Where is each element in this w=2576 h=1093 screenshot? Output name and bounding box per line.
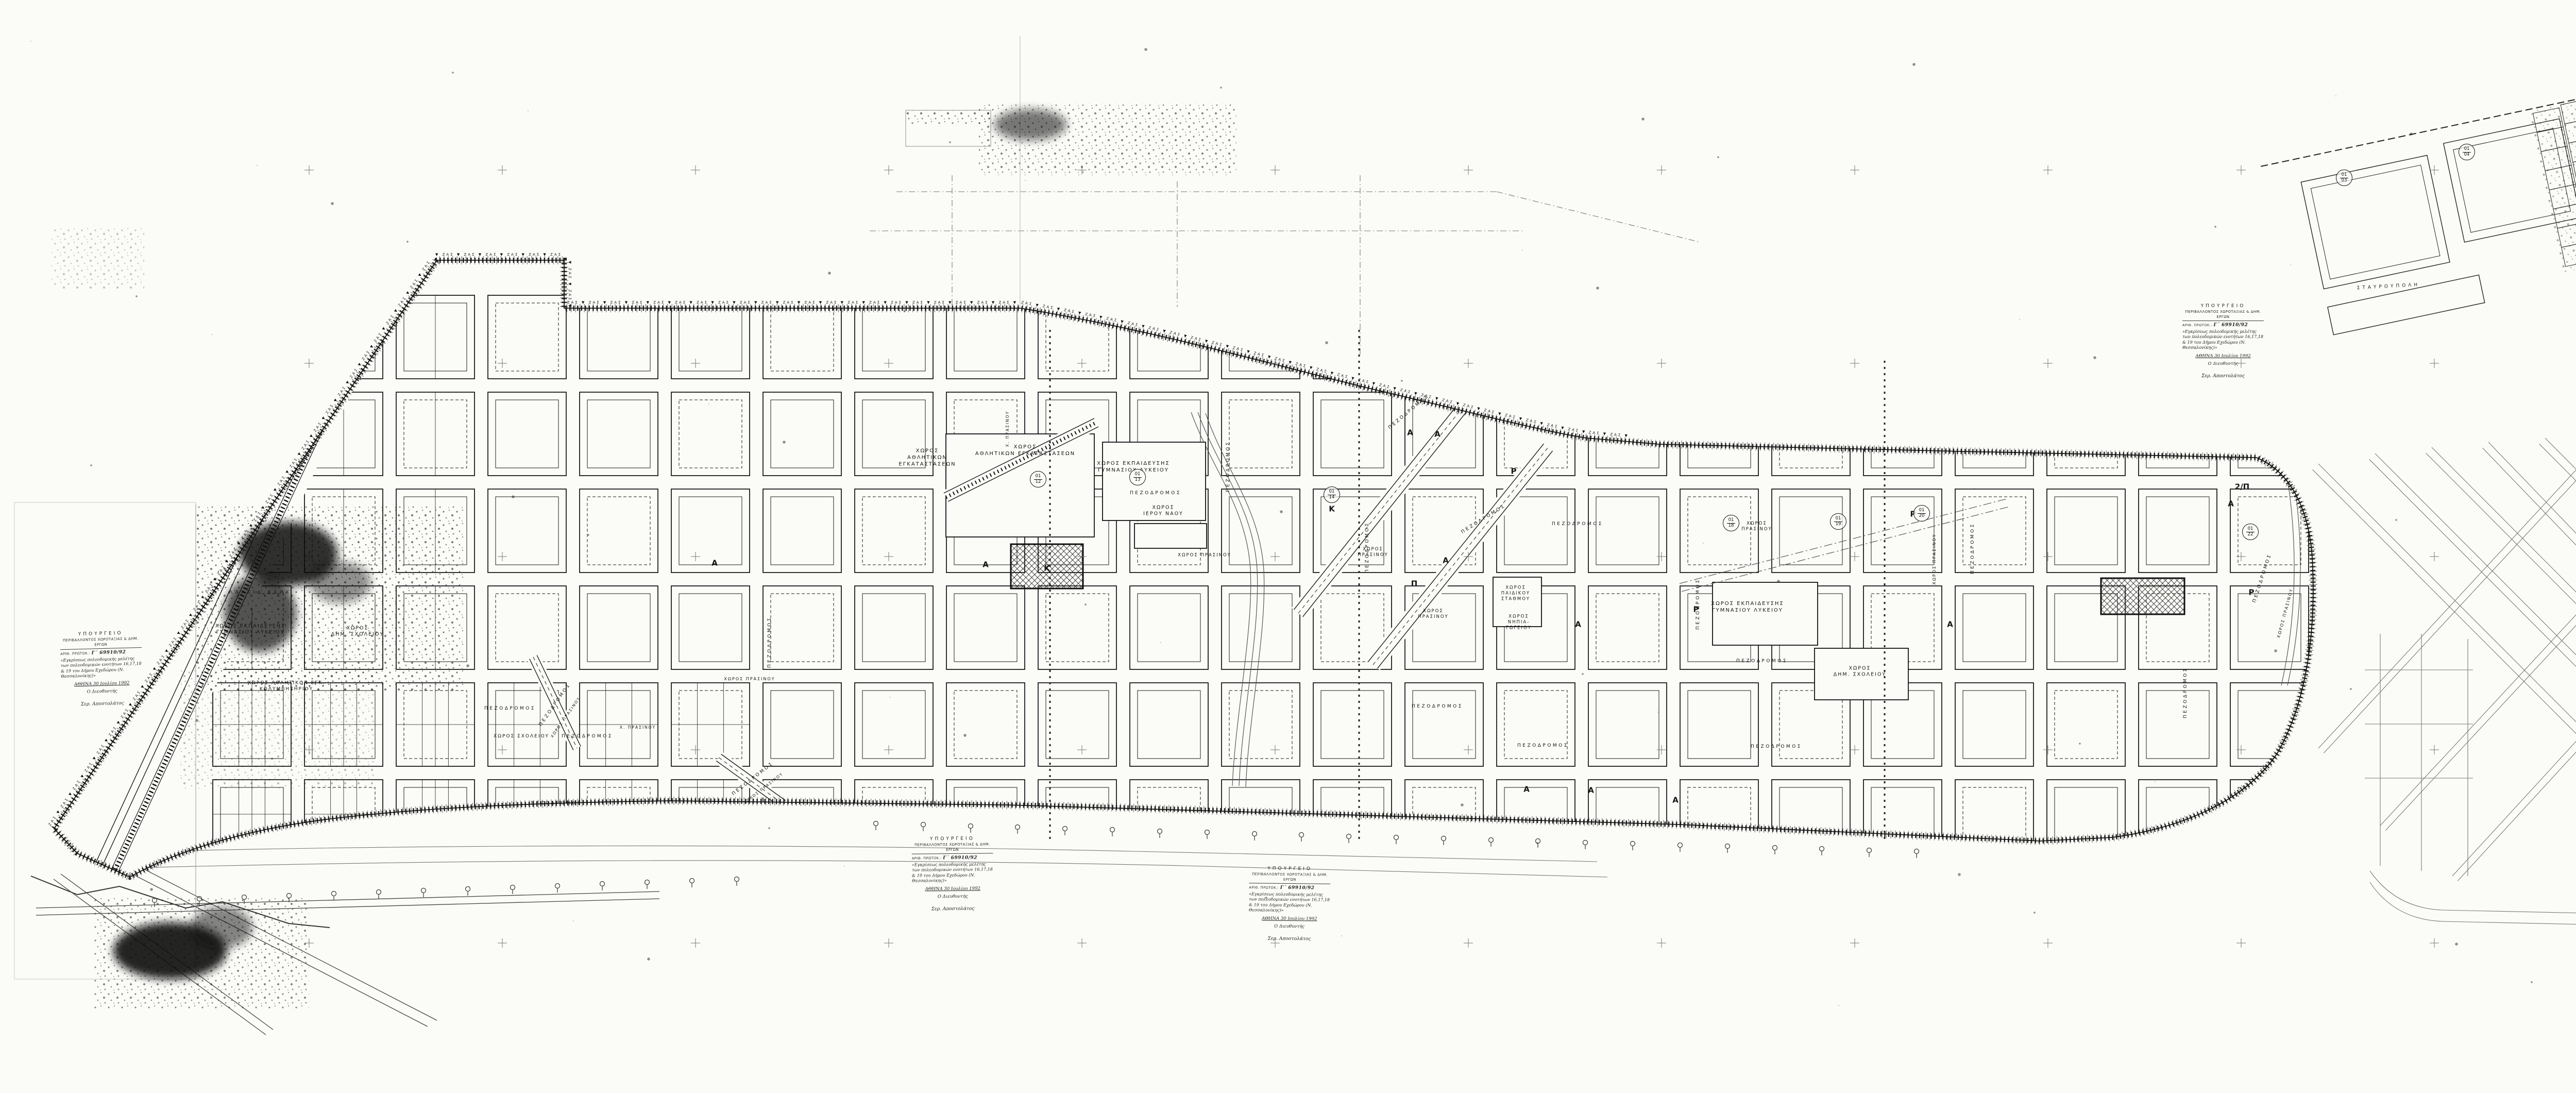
stamp-approval-text: «Εγκρίσεως πολεοδομικής μελέτης των πολε… bbox=[912, 862, 993, 884]
pedestrian-street-label: ΠΕΖΟΔΡΟΜΟΣ bbox=[767, 616, 773, 668]
pedestrian-street-label: ΠΕΖΟΔΡΟΜΟΣ bbox=[484, 706, 536, 712]
block-use-letter: Α bbox=[1434, 429, 1440, 440]
stamp-protocol-number: Γ΄ 69910/92 bbox=[943, 855, 977, 861]
stamp-ministry-dept: ΠΕΡΙΒΑΛΛΟΝΤΟΣ ΧΩΡΟΤΑΞΙΑΣ & ΔΗΜ. ΕΡΓΩΝ bbox=[2182, 310, 2264, 321]
block-number-badge: 0120 bbox=[1913, 505, 1930, 522]
stamp-protocol-number: Γ΄ 69910/92 bbox=[92, 649, 126, 655]
stamp-signature: Σερ. Αποστολάτος bbox=[62, 700, 143, 709]
land-use-label: ΧΩΡΟΣ ΕΚΠΑΙΔΕΥΣΗΣ ΓΥΜΝΑΣΙΟΥ ΛΥΚΕΙΟΥ bbox=[215, 624, 285, 636]
block-use-letter: Α bbox=[1588, 785, 1594, 796]
stamp-date: ΑΘΗΝΑ 30 Ιουλίου 1992 bbox=[1249, 916, 1330, 923]
block-number-badge: 0103 bbox=[2336, 170, 2352, 186]
block-use-letter: Α bbox=[711, 558, 718, 568]
stamp-date: ΑΘΗΝΑ 30 Ιουλίου 1992 bbox=[912, 886, 993, 893]
stamp-signature: Σερ. Αποστολάτος bbox=[912, 905, 994, 913]
stamp-signature: Σερ. Αποστολάτος bbox=[1248, 935, 1330, 943]
land-use-label: ΧΩΡΟΣ ΠΡΑΣΙΝΟΥ bbox=[1358, 547, 1388, 558]
land-use-label: ΧΩΡΟΣ ΠΡΑΣΙΝΟΥ bbox=[743, 771, 785, 805]
pedestrian-street-label: ΠΕΖΟΔΡΟΜΟΣ bbox=[1387, 393, 1431, 431]
land-use-label: Χ. ΠΡΑΣΙΝΟΥ bbox=[620, 725, 656, 730]
land-use-label: ΧΩΡΟΣ ΔΗΜ. ΣΧΟΛΕΙΟΥ bbox=[1834, 666, 1886, 679]
approval-stamp: ΥΠΟΥΡΓΕΙΟ ΠΕΡΙΒΑΛΛΟΝΤΟΣ ΧΩΡΟΤΑΞΙΑΣ & ΔΗΜ… bbox=[60, 630, 143, 709]
stamp-ministry: ΥΠΟΥΡΓΕΙΟ bbox=[2182, 303, 2264, 310]
stamp-approval-text: «Εγκρίσεως πολεοδομικής μελέτης των πολε… bbox=[60, 656, 142, 680]
block-use-letter: Α bbox=[1947, 619, 1953, 630]
pedestrian-street-label: ΠΕΖΟΔΡΟΜΟΣ bbox=[1365, 522, 1371, 573]
block-use-letter: Α bbox=[982, 560, 989, 570]
block-number-badge: 0114 bbox=[1324, 486, 1340, 503]
pedestrian-street-label: ΠΕΖΟΔΡΟΜΟΣ bbox=[1751, 744, 1802, 750]
block-use-letter: Α bbox=[1672, 795, 1679, 805]
land-use-label: ΧΩΡΟΣ ΠΡΑΣΙΝΟΥ bbox=[724, 677, 775, 682]
pedestrian-street-label: ΠΕΖΟΔΡΟΜΟΣ bbox=[2183, 667, 2189, 718]
stamp-date: ΑΘΗΝΑ 30 Ιουλίου 1992 bbox=[2182, 353, 2264, 359]
stamp-protocol-label: ΑΡΙΘ. ΠΡΩΤΟΚ.: bbox=[1249, 885, 1279, 890]
land-use-label: ΧΩΡΟΣ ΕΚΠΑΙΔΕΥΣΗΣ ΓΥΜΝΑΣΙΟΥ ΛΥΚΕΙΟΥ bbox=[1711, 600, 1784, 614]
block-use-letter: Κ bbox=[1329, 504, 1335, 514]
land-use-label: ΧΩΡΟΣ ΙΕΡΟΥ ΝΑΟΥ bbox=[1143, 505, 1183, 518]
pedestrian-street-label: ΠΕΖΟΔΡΟΜΟΣ bbox=[2252, 553, 2274, 604]
stamp-signer-title: Ο Διευθυντής bbox=[61, 687, 143, 696]
pedestrian-street-label: ΠΕΖΟΔΡΟΜΟΣ bbox=[1226, 441, 1232, 492]
pedestrian-street-label: ΠΕΖΟΔΡΟΜΟΣ bbox=[1970, 523, 1976, 574]
land-use-label: ΧΩΡΟΣ ΣΧΟΛΕΙΟΥ bbox=[494, 734, 549, 740]
toponym-label: ΣΤΑΥΡΟΥΠΟΛΗ bbox=[2357, 282, 2420, 292]
pedestrian-street-label: ΠΕΖΟΔΡΟΜΟΣ bbox=[538, 682, 573, 728]
approval-stamp: ΥΠΟΥΡΓΕΙΟ ΠΕΡΙΒΑΛΛΟΝΤΟΣ ΧΩΡΟΤΑΞΙΑΣ & ΔΗΜ… bbox=[1248, 865, 1330, 943]
block-number-badge: 0113 bbox=[1129, 469, 1146, 485]
pedestrian-street-label: ΠΕΖΟΔΡΟΜΟΣ bbox=[531, 801, 582, 807]
stamp-protocol-number: Γ΄ 69910/92 bbox=[1280, 885, 1315, 891]
stamp-protocol-number: Γ΄ 69910/92 bbox=[2214, 323, 2248, 328]
land-use-label: ΧΩΡΟΣ ΝΗΠΙΑ- ΓΩΓΕΙΟΥ bbox=[1506, 614, 1532, 631]
block-number-badge: 0122 bbox=[2242, 524, 2259, 540]
stamp-signer-title: Ο Διευθυντής bbox=[2182, 361, 2264, 367]
land-use-label: ΧΩΡΟΣ ΠΡΑΣΙΝΟΥ bbox=[1418, 609, 1448, 620]
stamp-approval-text: «Εγκρίσεως πολεοδομικής μελέτης των πολε… bbox=[2182, 329, 2264, 351]
block-use-letter: Π bbox=[1411, 579, 1418, 589]
land-use-label: ΧΩΡΟΣ ΠΡΑΣΙΝΟΥ bbox=[2276, 588, 2295, 639]
pedestrian-street-label: ΠΕΖΟΔΡΟΜΟΣ bbox=[1736, 659, 1788, 665]
block-use-letter: 2/Π bbox=[2235, 482, 2249, 492]
approval-stamp: ΥΠΟΥΡΓΕΙΟ ΠΕΡΙΒΑΛΛΟΝΤΟΣ ΧΩΡΟΤΑΞΙΑΣ & ΔΗΜ… bbox=[2182, 303, 2264, 380]
land-use-label: ΧΩΡΟΣ ΑΘΛΗΤΙΚΩΝ ΕΓΚΑΤΑΣΤΑΣΕΩΝ bbox=[899, 448, 956, 468]
toponym-label: ΛΑΚΚΙΑ ΚΑΡΑ bbox=[229, 590, 291, 596]
block-use-letter: Ρ bbox=[2249, 587, 2255, 598]
pedestrian-street-label: ΠΕΖΟΔΡΟΜΟΣ bbox=[1412, 704, 1463, 710]
block-number-badge: 0104 bbox=[2459, 144, 2475, 160]
land-use-label: ΧΩΡΟΣ ΑΘΛΗΤΙΚΩΝ ΕΓΚ. ΚΟΛΥΜΒΗΤΗΡΙΟΥ bbox=[248, 680, 325, 692]
scanned-town-plan-sheet: ΖΑΣ ▼ ΖΑΣ ▼ ΖΑΣ ▼ ΖΑΣ ▼ ΖΑΣ ▼ ΖΑΣ ▼ ΖΑΣ … bbox=[0, 0, 2576, 1093]
block-use-letter: Ρ bbox=[1511, 466, 1517, 477]
stamp-signer-title: Ο Διευθυντής bbox=[912, 893, 993, 900]
stamp-signature: Σερ. Αποστολάτος bbox=[2182, 373, 2264, 380]
stamp-signer-title: Ο Διευθυντής bbox=[1249, 923, 1330, 930]
land-use-label: ΧΩΡΟΣ ΠΡΑΣΙΝΟΥ bbox=[1178, 552, 1231, 558]
stamp-protocol: ΑΡΙΘ. ΠΡΩΤΟΚ.: Γ΄ 69910/92 bbox=[1249, 884, 1330, 892]
stamp-ministry-dept: ΠΕΡΙΒΑΛΛΟΝΤΟΣ ΧΩΡΟΤΑΞΙΑΣ & ΔΗΜ. ΕΡΓΩΝ bbox=[60, 636, 142, 650]
pedestrian-street-label: ΠΕΖΟΔΡΟΜΟΣ bbox=[1696, 578, 1702, 630]
block-use-letter: Α bbox=[1575, 619, 1581, 630]
stamp-ministry: ΥΠΟΥΡΓΕΙΟ bbox=[1249, 865, 1331, 872]
stamp-protocol-label: ΑΡΙΘ. ΠΡΩΤΟΚ.: bbox=[912, 856, 942, 861]
block-number-badge: 0112 bbox=[1030, 471, 1046, 487]
stamp-protocol: ΑΡΙΘ. ΠΡΩΤΟΚ.: Γ΄ 69910/92 bbox=[2182, 322, 2264, 329]
stamp-ministry-dept: ΠΕΡΙΒΑΛΛΟΝΤΟΣ ΧΩΡΟΤΑΞΙΑΣ & ΔΗΜ. ΕΡΓΩΝ bbox=[911, 842, 993, 854]
pedestrian-street-label: ΠΕΖΟΔΡΟΜΟΣ bbox=[1130, 491, 1181, 497]
pedestrian-street-label: ΠΕΖΟΔΡΟΜΟΣ bbox=[1517, 743, 1569, 749]
stamp-protocol-label: ΑΡΙΘ. ΠΡΩΤΟΚ.: bbox=[60, 651, 90, 656]
land-use-label: ΧΩΡΟΣ ΑΘΛΗΤΙΚΩΝ ΕΓΚΑΤΑΣΤΑΣΕΩΝ bbox=[975, 444, 1075, 457]
stamp-approval-text: «Εγκρίσεως πολεοδομικής μελέτης των πολε… bbox=[1249, 892, 1330, 914]
land-use-label: Χ. ΠΡΑΣΙΝΟΥ bbox=[1005, 411, 1010, 447]
stamp-protocol-label: ΑΡΙΘ. ΠΡΩΤΟΚ.: bbox=[2182, 323, 2212, 327]
block-use-letter: Α bbox=[1407, 428, 1413, 438]
block-use-letter: Α bbox=[2228, 499, 2234, 509]
land-use-label: ΧΩΡΟΣ ΠΡΑΣΙΝΟΥ bbox=[1932, 533, 1937, 584]
approval-stamp: ΥΠΟΥΡΓΕΙΟ ΠΕΡΙΒΑΛΛΟΝΤΟΣ ΧΩΡΟΤΑΞΙΑΣ & ΔΗΜ… bbox=[911, 835, 993, 913]
block-use-letter: Α bbox=[1443, 556, 1449, 566]
stamp-ministry-dept: ΠΕΡΙΒΑΛΛΟΝΤΟΣ ΧΩΡΟΤΑΞΙΑΣ & ΔΗΜ. ΕΡΓΩΝ bbox=[1249, 872, 1330, 884]
block-number-badge: 0119 bbox=[1830, 513, 1846, 530]
pedestrian-street-label: ΠΕΖΟΔΡΟΜΟΣ bbox=[1552, 522, 1603, 528]
block-use-letter: Ρ bbox=[1693, 604, 1699, 615]
pedestrian-street-label: ΠΕΖΟΔΡΟΜΟΣ bbox=[731, 761, 775, 798]
land-use-label: ΧΩΡΟΣ ΠΡΑΣΙΝΟΥ bbox=[1741, 521, 1772, 532]
block-use-letter: Κ bbox=[1044, 563, 1050, 574]
block-use-letter: Α bbox=[1523, 784, 1530, 795]
pedestrian-street-label: ΠΕΖΟΔΡΟΜΟΣ bbox=[562, 734, 613, 740]
land-use-label: ΧΩΡΟΣ ΠΑΙΔΙΚΟΥ ΣΤΑΘΜΟΥ bbox=[1501, 585, 1531, 602]
label-layer: ΧΩΡΟΣ ΑΘΛΗΤΙΚΩΝ ΕΓΚΑΤΑΣΤΑΣΕΩΝΧΩΡΟΣ ΑΘΛΗΤ… bbox=[0, 0, 2576, 1093]
pedestrian-street-label: ΠΕΖΟΔΡΟΜΟΣ bbox=[1461, 503, 1507, 536]
land-use-label: ΧΩΡΟΣ ΔΗΜ. ΣΧΟΛΕΙΟΥ bbox=[331, 626, 384, 638]
block-number-badge: 0118 bbox=[1723, 515, 1739, 531]
stamp-protocol: ΑΡΙΘ. ΠΡΩΤΟΚ.: Γ΄ 69910/92 bbox=[912, 854, 993, 862]
